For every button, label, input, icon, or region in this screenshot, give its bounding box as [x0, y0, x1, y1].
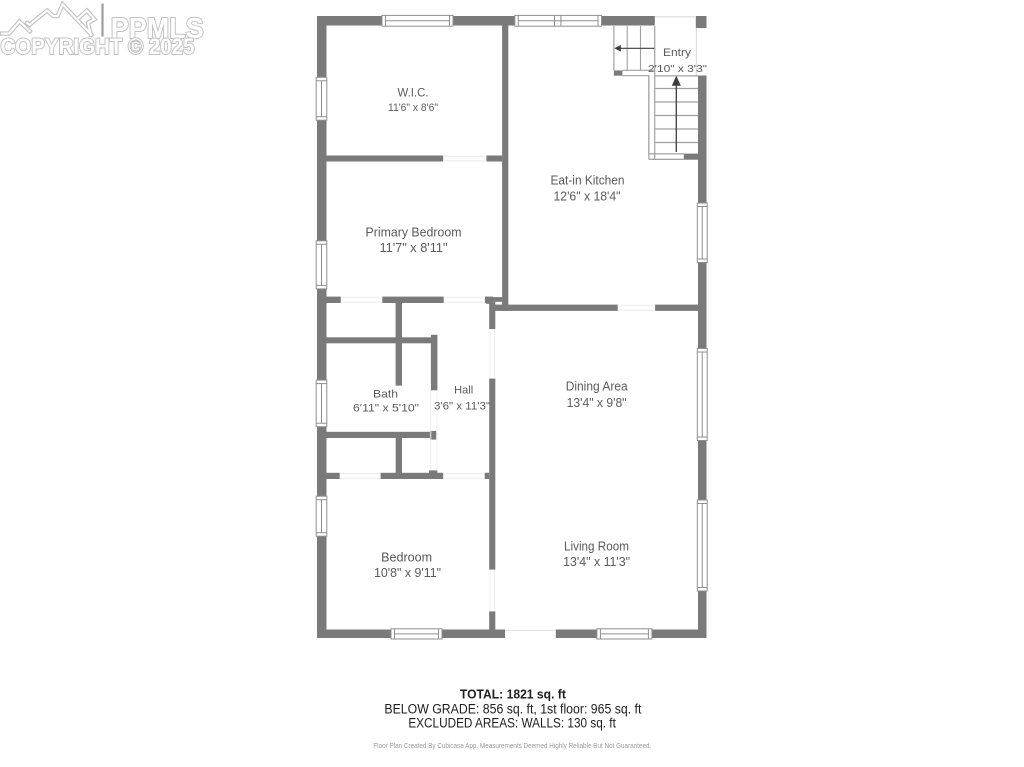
svg-text:Entry: Entry — [663, 47, 692, 59]
svg-text:11'7" x 8'11": 11'7" x 8'11" — [380, 241, 448, 255]
svg-text:EXCLUDED AREAS: WALLS: 130 sq.: EXCLUDED AREAS: WALLS: 130 sq. ft — [408, 716, 616, 731]
svg-text:2'10" x 3'3": 2'10" x 3'3" — [648, 63, 707, 75]
svg-text:Floor Plan Created By Cubicasa: Floor Plan Created By Cubicasa App. Meas… — [373, 742, 651, 750]
svg-text:BELOW GRADE: 856 sq. ft, 1st f: BELOW GRADE: 856 sq. ft, 1st floor: 965 … — [384, 702, 641, 717]
svg-text:10'8" x 9'11": 10'8" x 9'11" — [374, 566, 441, 580]
svg-text:11'6" x 8'6": 11'6" x 8'6" — [388, 102, 438, 114]
svg-text:W.I.C.: W.I.C. — [398, 88, 429, 100]
svg-text:13'4" x 11'3": 13'4" x 11'3" — [563, 555, 630, 569]
svg-text:Primary Bedroom: Primary Bedroom — [366, 226, 462, 240]
svg-text:13'4" x 9'8": 13'4" x 9'8" — [567, 396, 627, 410]
svg-text:Dining Area: Dining Area — [566, 380, 628, 394]
svg-text:12'6" x 18'4": 12'6" x 18'4" — [554, 190, 621, 204]
svg-text:TOTAL: 1821 sq. ft: TOTAL: 1821 sq. ft — [460, 687, 567, 702]
svg-text:Bedroom: Bedroom — [381, 551, 432, 565]
svg-text:Bath: Bath — [373, 389, 398, 401]
svg-text:Eat-in Kitchen: Eat-in Kitchen — [551, 174, 625, 188]
svg-text:COPYRIGHT © 2025: COPYRIGHT © 2025 — [1, 34, 195, 59]
svg-text:Living Room: Living Room — [564, 540, 629, 554]
svg-text:3'6" x 11'3": 3'6" x 11'3" — [434, 401, 490, 413]
svg-text:Hall: Hall — [454, 385, 473, 397]
svg-text:6'11" x 5'10": 6'11" x 5'10" — [353, 403, 419, 415]
